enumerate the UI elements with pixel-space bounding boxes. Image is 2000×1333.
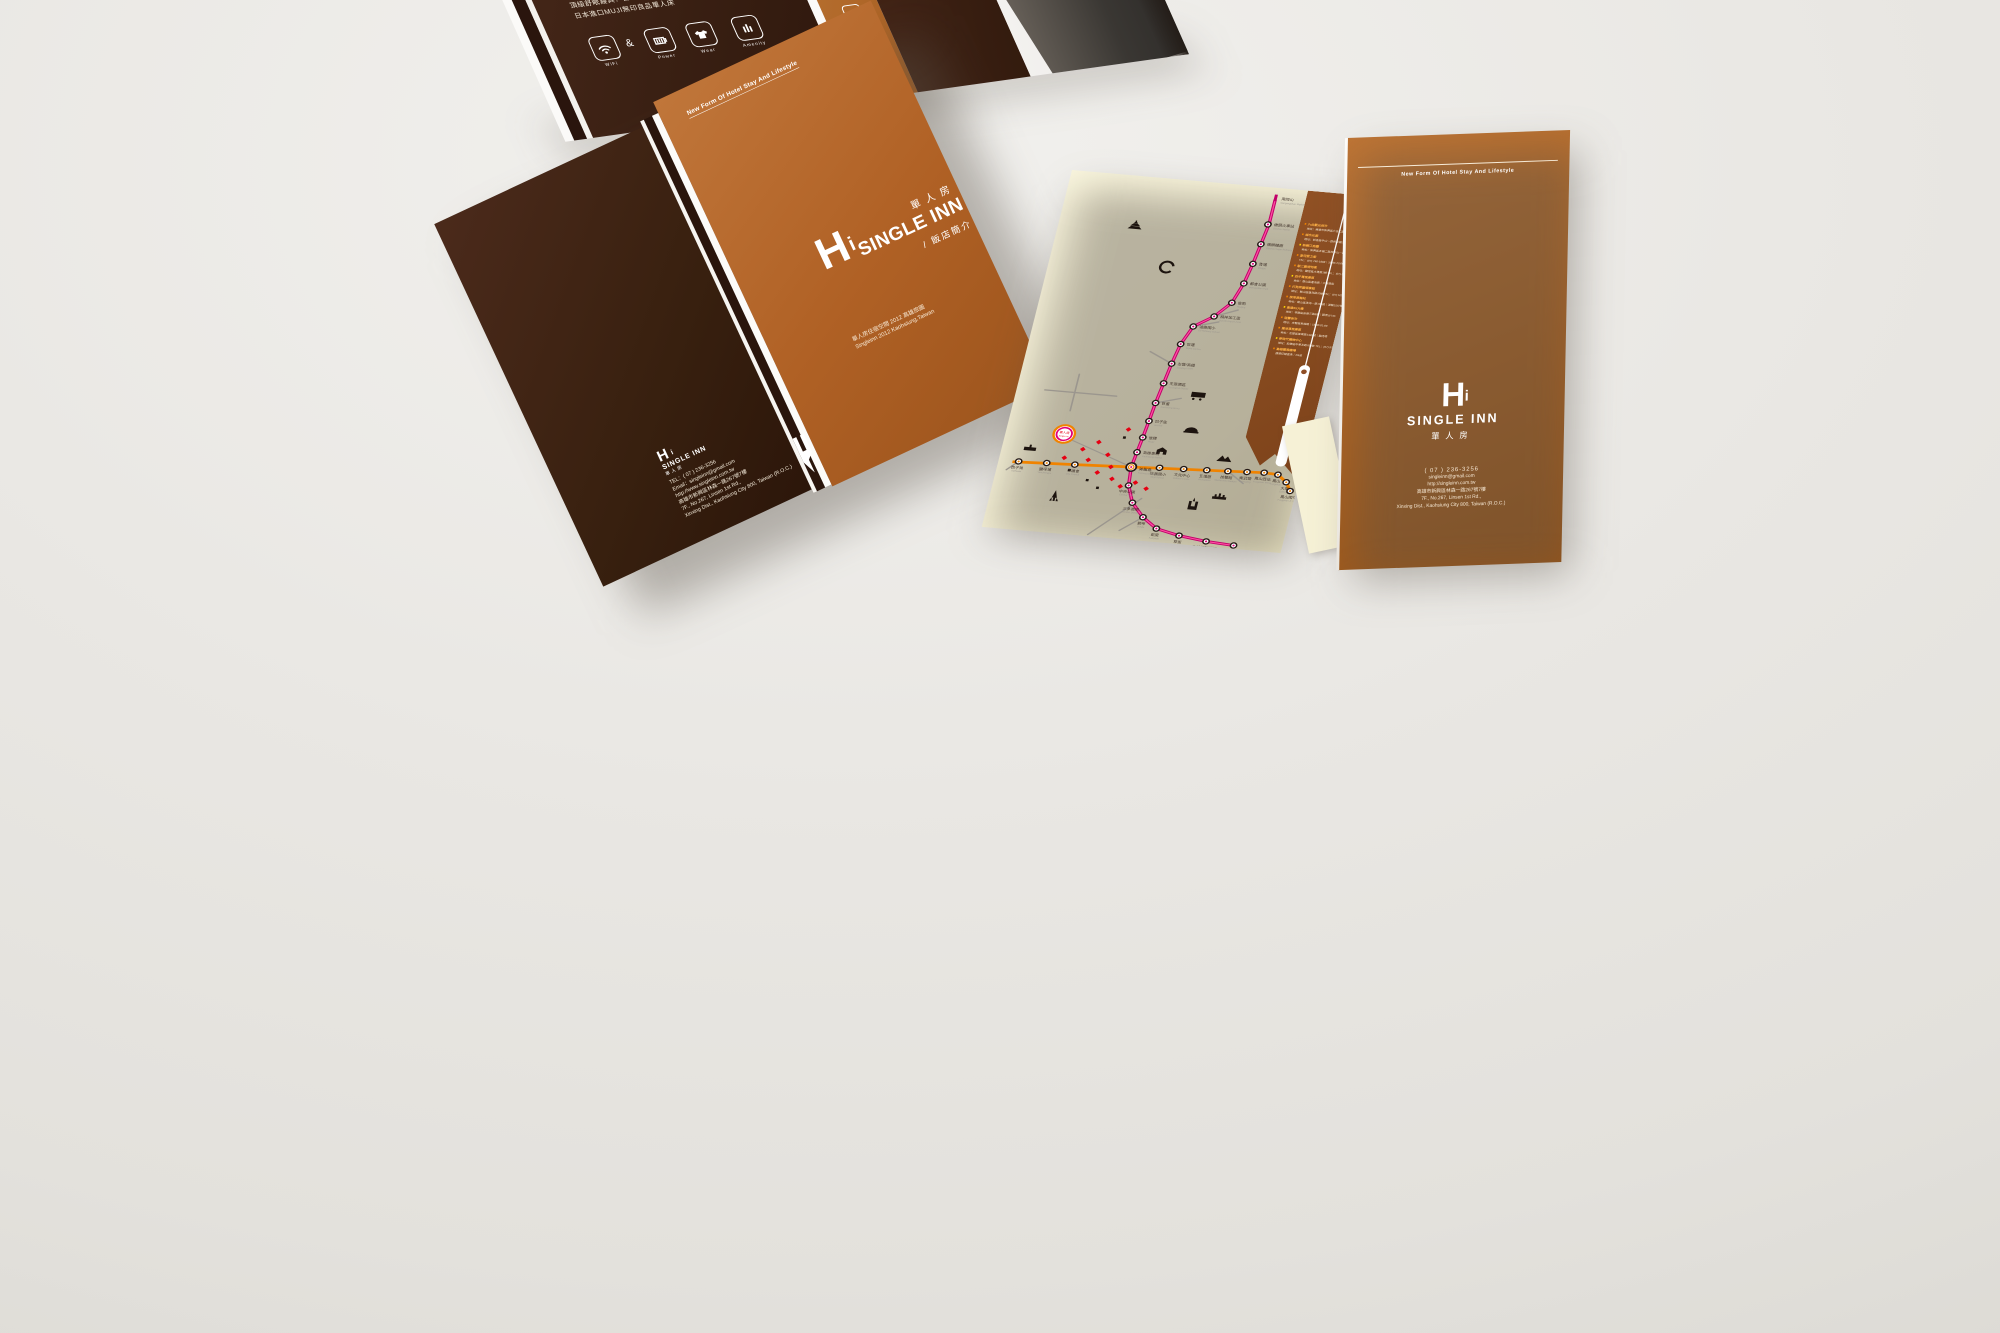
amenity-item: WiFi <box>586 34 627 72</box>
logo-h-glyph: Hi <box>811 229 853 274</box>
station-label-en: Qingpu <box>1258 268 1267 271</box>
terminus-label-en: Nangangshan Station <box>1280 202 1305 207</box>
station-label-zh: 生態園區 <box>1169 381 1187 387</box>
english-paragraph: and lifwatch TV frbody and minyou can al… <box>1227 0 1462 9</box>
station-label-zh: 青埔 <box>1258 262 1267 267</box>
station-label-zh: 後驛 <box>1148 435 1157 440</box>
station-label-en: Qiaotou Sugar Refinery <box>1266 247 1293 252</box>
tower85-icon <box>1187 497 1199 510</box>
bullet-icon <box>1288 285 1290 287</box>
poi-dot <box>1126 427 1132 432</box>
bullet-icon <box>1299 243 1301 245</box>
station-label-en: Wukuaicuo <box>1198 479 1211 482</box>
mockup-scene: 奢華視聽設備：USB充電插座Philips立體電視機頂級舒眠寢具：台灣製天然羽絨… <box>0 0 2000 1333</box>
station-label-en: Aozihdi <box>1154 424 1163 427</box>
station-label-en: Sinyi School <box>1150 477 1165 480</box>
amenity-label: WiFi <box>604 61 619 67</box>
station-label-zh: 鳳山 <box>1272 478 1281 483</box>
bullet-icon <box>1278 326 1280 328</box>
station-label-zh: 都會公園 <box>1249 281 1267 287</box>
logo: Hi 單人房 SINGLE INN / 飯店簡介 <box>811 177 974 294</box>
hotel-marker-zh: 單人房 <box>1059 430 1070 435</box>
wear-icon <box>683 21 719 48</box>
station-label-en: Oil Refinery School <box>1198 330 1220 334</box>
amenity-label: Wear <box>700 47 717 54</box>
poi-square <box>1096 487 1099 490</box>
bullet-icon <box>1283 306 1285 308</box>
bullet-icon <box>1275 337 1277 339</box>
mountain-icon <box>1216 455 1232 462</box>
poi-dot <box>1133 480 1139 485</box>
power-icon <box>642 26 678 53</box>
station-label-en: Weiwuying <box>1238 481 1251 484</box>
station-label-zh: 油廠國小 <box>1199 324 1217 330</box>
station-label-en: Kaohsiung Station <box>1142 455 1164 459</box>
back-cover-shadow <box>1353 151 1579 581</box>
station-label-en: Houyi <box>1147 441 1154 443</box>
poi-dot <box>1062 455 1068 460</box>
junction-label-zh: 美麗島 <box>1138 466 1152 472</box>
station-label-zh: 巨蛋 <box>1161 401 1170 406</box>
logo-chinese: 單人房 <box>1431 429 1473 442</box>
amenity-item: Wear <box>681 20 726 59</box>
station-label-zh: 凱旋 <box>1150 532 1159 537</box>
poi-dot <box>1105 452 1111 457</box>
terminus-label-zh: 南岡山 <box>1281 197 1295 203</box>
station-label-en: Ecological District <box>1168 386 1189 390</box>
station-label-en: World Games <box>1185 348 1201 351</box>
train-icon <box>1190 392 1206 401</box>
poi-dot <box>1143 486 1149 491</box>
station-label-zh: 橋頭糖廠 <box>1266 242 1284 248</box>
pier-icon <box>1024 444 1037 451</box>
logo-h-glyph: Hi <box>1435 381 1472 410</box>
amenity-icon <box>735 18 760 37</box>
poi-dot <box>1109 477 1115 482</box>
bullet-icon <box>1294 264 1296 266</box>
wifi-icon <box>592 38 617 57</box>
bullet-icon <box>1296 254 1298 256</box>
poi-dot <box>1096 440 1102 445</box>
poi-dot <box>1080 447 1086 452</box>
mall-icon <box>1212 493 1227 500</box>
road-line <box>1045 390 1117 396</box>
poi-dot <box>1094 470 1100 475</box>
bullet-icon <box>1286 295 1288 297</box>
logo-i-glyph: i <box>1464 383 1469 411</box>
station-label-zh: 世運 <box>1186 342 1195 347</box>
station-label-en: Kaohsiung Arena <box>1160 406 1180 410</box>
bullet-icon <box>1302 233 1304 235</box>
station-label-zh: 後勁 <box>1237 301 1246 306</box>
station-label-en: Metropolitan Park <box>1249 286 1270 290</box>
contact-block: ( 07 ) 236-3256singleinn@gmail.comhttp:/… <box>1339 462 1563 513</box>
poi-dot <box>1085 458 1091 463</box>
rocket-icon <box>1049 490 1060 502</box>
station-label-en: Yanchengpu <box>1037 472 1052 475</box>
station-label-zh: 左營/高鐵 <box>1177 362 1196 368</box>
station-label-en: Sizihwan <box>1011 470 1022 473</box>
poi-square <box>1123 436 1126 439</box>
bullet-icon <box>1291 275 1293 277</box>
back-cover-brochure: New Form Of Hotel Stay And Lifestyle Hi … <box>1338 130 1570 570</box>
ampersand-separator: & <box>624 37 636 49</box>
bullet-icon <box>1281 316 1283 318</box>
dome-icon <box>1183 427 1199 434</box>
wifi-icon <box>586 34 622 61</box>
station-label-zh: 凹子底 <box>1154 419 1168 425</box>
poi-square <box>1086 479 1089 482</box>
power-icon <box>648 31 673 50</box>
station-label-en: Kaisyuan <box>1148 538 1159 541</box>
temple-icon <box>1127 220 1143 230</box>
logo: Hi SINGLE INN 單人房 <box>1341 377 1565 445</box>
stadium-icon <box>1159 261 1174 273</box>
amenity-label: Amenity <box>742 40 767 48</box>
amenity-item: Power <box>637 26 688 66</box>
bullet-icon <box>1304 223 1306 225</box>
amenity-label: Power <box>657 53 677 60</box>
bullet-icon <box>1273 347 1275 349</box>
station-label-en: Shihjia <box>1136 526 1145 528</box>
station-label-en: Zuoying / HSR <box>1176 367 1193 370</box>
station-label-zh: 獅甲 <box>1137 521 1146 526</box>
wear-icon <box>689 25 714 44</box>
amenity-icon <box>729 14 765 41</box>
station-label-en: Houjing <box>1237 307 1247 310</box>
station-label-zh: 草衙 <box>1173 539 1182 544</box>
poi-dot <box>1117 484 1123 489</box>
